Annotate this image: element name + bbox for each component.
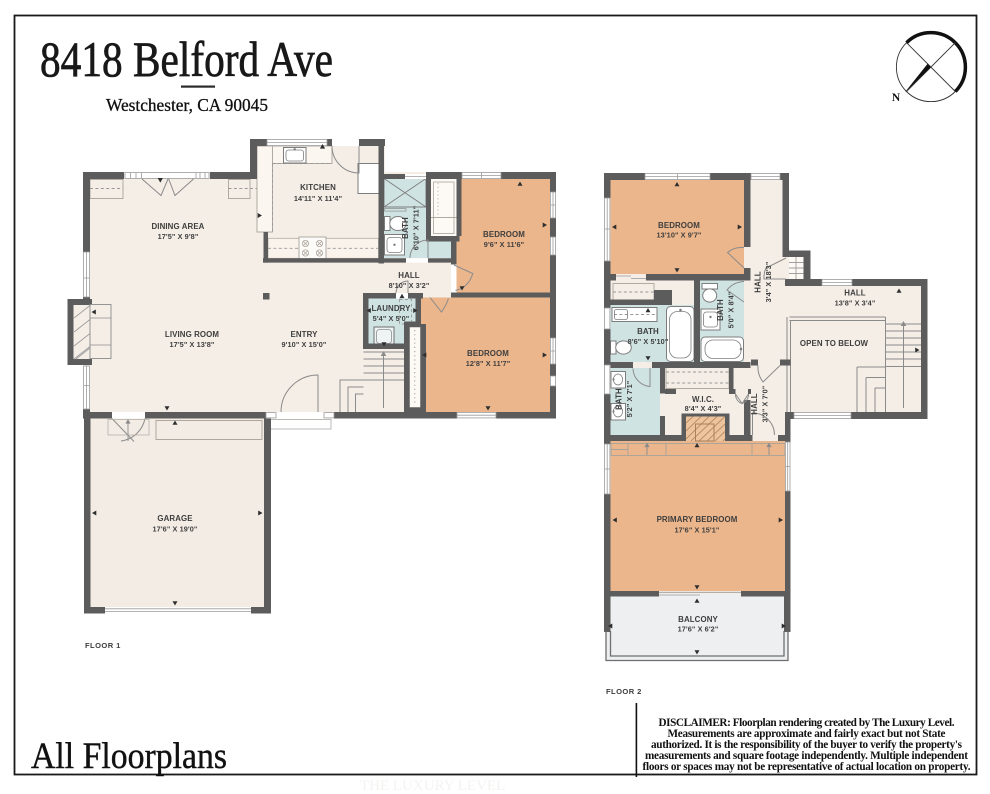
svg-text:3'4" X 18'3": 3'4" X 18'3": [764, 262, 773, 303]
svg-text:HALL: HALL: [750, 393, 759, 415]
svg-text:DINING AREA: DINING AREA: [152, 222, 205, 231]
svg-text:W.I.C.: W.I.C.: [692, 395, 714, 404]
svg-text:ENTRY: ENTRY: [291, 330, 319, 339]
svg-text:BATH: BATH: [401, 217, 410, 239]
svg-text:THE LUXURY LEVEL: THE LUXURY LEVEL: [360, 778, 505, 794]
svg-text:6'10" X 7'11": 6'10" X 7'11": [412, 206, 421, 251]
svg-text:5'0" X 8'4": 5'0" X 8'4": [727, 292, 736, 329]
svg-text:KITCHEN: KITCHEN: [300, 183, 336, 192]
svg-text:All Floorplans: All Floorplans: [31, 736, 227, 777]
svg-text:9'10" X 15'0": 9'10" X 15'0": [282, 340, 327, 349]
svg-text:HALL: HALL: [754, 271, 763, 293]
svg-text:GARAGE: GARAGE: [157, 514, 192, 523]
svg-text:13'8" X 3'4": 13'8" X 3'4": [835, 299, 876, 308]
svg-text:13'10" X 9'7": 13'10" X 9'7": [657, 231, 702, 240]
svg-text:floors or spaces may not be re: floors or spaces may not be representati…: [643, 761, 971, 773]
svg-text:FLOOR 2: FLOOR 2: [606, 687, 642, 696]
svg-text:17'6" X 19'0": 17'6" X 19'0": [153, 525, 198, 534]
svg-text:17'5" X 9'8": 17'5" X 9'8": [158, 232, 199, 241]
svg-text:HALL: HALL: [844, 289, 866, 298]
svg-text:8418 Belford Ave: 8418 Belford Ave: [40, 31, 333, 87]
svg-text:BEDROOM: BEDROOM: [658, 221, 700, 230]
svg-text:LIVING ROOM: LIVING ROOM: [165, 330, 219, 339]
svg-text:PRIMARY BEDROOM: PRIMARY BEDROOM: [657, 515, 738, 524]
svg-text:5'2" X 7'1": 5'2" X 7'1": [625, 381, 634, 418]
svg-text:LAUNDRY: LAUNDRY: [372, 304, 412, 313]
svg-text:Westchester, CA 90045: Westchester, CA 90045: [106, 95, 268, 115]
svg-text:9'6" X 11'6": 9'6" X 11'6": [484, 240, 524, 249]
svg-text:8'4" X 4'3": 8'4" X 4'3": [685, 404, 722, 413]
svg-text:8'10" X 3'2": 8'10" X 3'2": [389, 281, 430, 290]
svg-text:5'4" X 5'0": 5'4" X 5'0": [373, 314, 410, 323]
svg-text:12'8" X 11'7": 12'8" X 11'7": [466, 359, 511, 368]
svg-text:BEDROOM: BEDROOM: [483, 230, 525, 239]
svg-text:BALCONY: BALCONY: [678, 615, 718, 624]
svg-text:FLOOR 1: FLOOR 1: [85, 641, 121, 650]
svg-text:OPEN TO BELOW: OPEN TO BELOW: [800, 339, 869, 348]
svg-text:3'3" X 7'0": 3'3" X 7'0": [761, 386, 770, 423]
svg-text:8'6" X 5'10": 8'6" X 5'10": [628, 337, 669, 346]
svg-text:17'6" X 15'1": 17'6" X 15'1": [675, 526, 720, 535]
svg-text:HALL: HALL: [398, 271, 420, 280]
svg-text:N: N: [892, 92, 901, 104]
svg-text:BATH: BATH: [716, 299, 725, 321]
svg-text:BATH: BATH: [637, 327, 659, 336]
svg-text:BATH: BATH: [615, 388, 624, 410]
svg-text:17'6" X 6'2": 17'6" X 6'2": [678, 625, 719, 634]
svg-text:14'11" X 11'4": 14'11" X 11'4": [294, 194, 342, 203]
svg-text:BEDROOM: BEDROOM: [467, 349, 509, 358]
svg-text:17'5" X 13'8": 17'5" X 13'8": [170, 340, 215, 349]
